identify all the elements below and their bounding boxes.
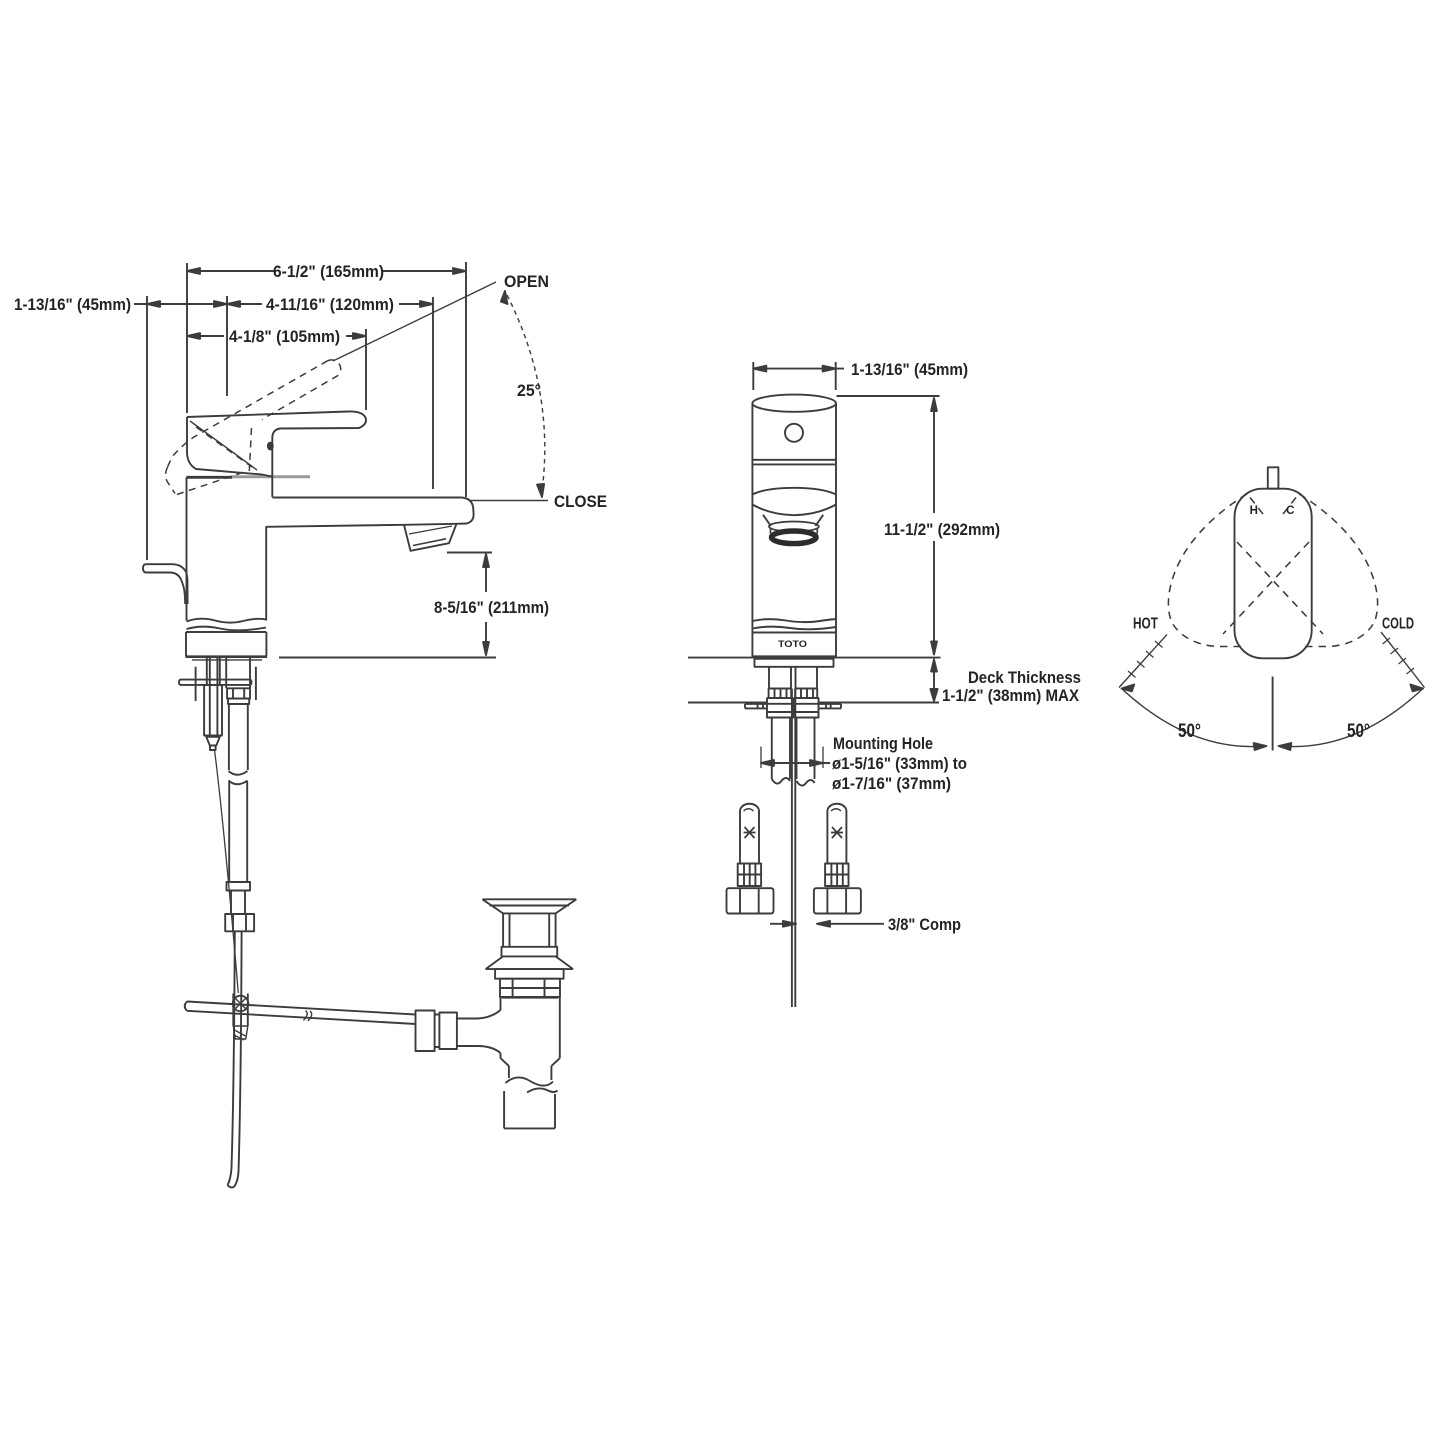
svg-text:11-1/2" (292mm): 11-1/2" (292mm) — [884, 520, 1000, 539]
svg-text:Mounting Hole: Mounting Hole — [833, 734, 933, 753]
svg-text:50°: 50° — [1178, 721, 1201, 742]
svg-text:C: C — [1286, 505, 1294, 517]
svg-text:4-11/16" (120mm): 4-11/16" (120mm) — [266, 295, 394, 314]
svg-text:4-1/8" (105mm): 4-1/8" (105mm) — [229, 327, 340, 346]
svg-text:25°: 25° — [517, 381, 541, 400]
svg-text:1-1/2" (38mm) MAX: 1-1/2" (38mm) MAX — [942, 687, 1079, 705]
svg-text:8-5/16" (211mm): 8-5/16" (211mm) — [434, 598, 549, 617]
svg-text:Deck Thickness: Deck Thickness — [968, 669, 1081, 687]
svg-text:ø1-7/16" (37mm): ø1-7/16" (37mm) — [832, 774, 951, 793]
svg-text:ø1-5/16" (33mm) to: ø1-5/16" (33mm) to — [832, 754, 967, 773]
svg-text:1-13/16" (45mm): 1-13/16" (45mm) — [851, 360, 968, 379]
svg-text:TOTO: TOTO — [778, 639, 807, 650]
svg-text:50°: 50° — [1347, 721, 1370, 742]
svg-text:HOT: HOT — [1133, 616, 1158, 633]
svg-text:3/8" Comp: 3/8" Comp — [888, 915, 961, 934]
svg-text:1-13/16" (45mm): 1-13/16" (45mm) — [14, 295, 131, 314]
svg-text:OPEN: OPEN — [504, 272, 549, 291]
svg-text:CLOSE: CLOSE — [554, 492, 607, 511]
svg-text:COLD: COLD — [1382, 616, 1414, 633]
svg-text:6-1/2" (165mm): 6-1/2" (165mm) — [273, 262, 384, 281]
svg-text:H: H — [1250, 505, 1258, 517]
